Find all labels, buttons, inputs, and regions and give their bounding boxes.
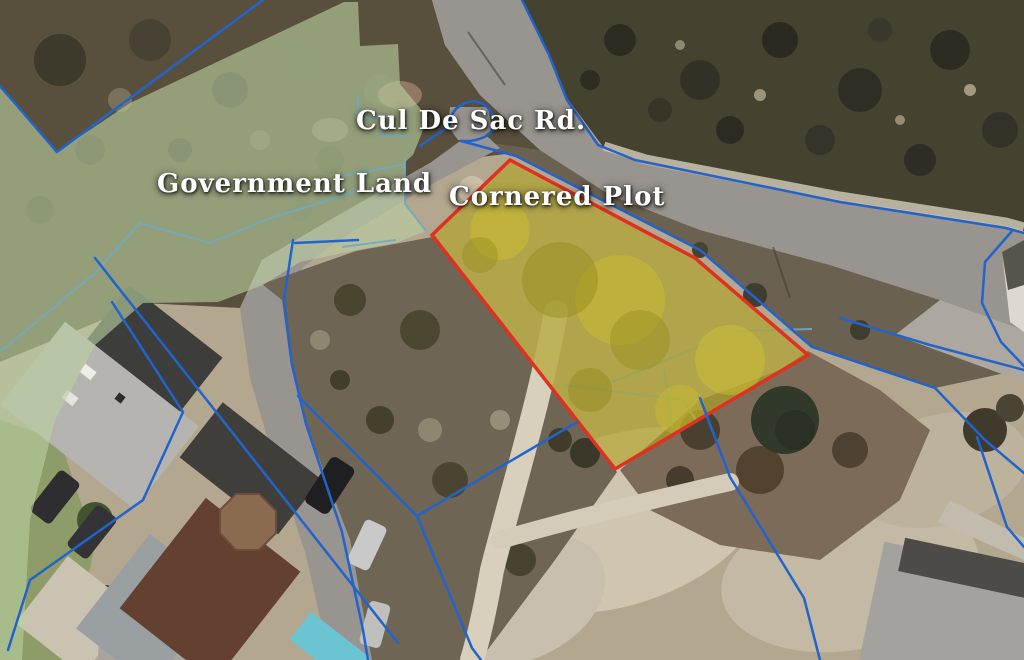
- satellite-canvas: [0, 0, 1024, 660]
- plot-label: Cornered Plot: [449, 182, 665, 212]
- octagon-roof: [220, 494, 276, 550]
- aerial-map: Cul De Sac Rd. Government Land Cornered …: [0, 0, 1024, 660]
- government-land-label: Government Land: [157, 169, 432, 199]
- road-label: Cul De Sac Rd.: [356, 106, 586, 136]
